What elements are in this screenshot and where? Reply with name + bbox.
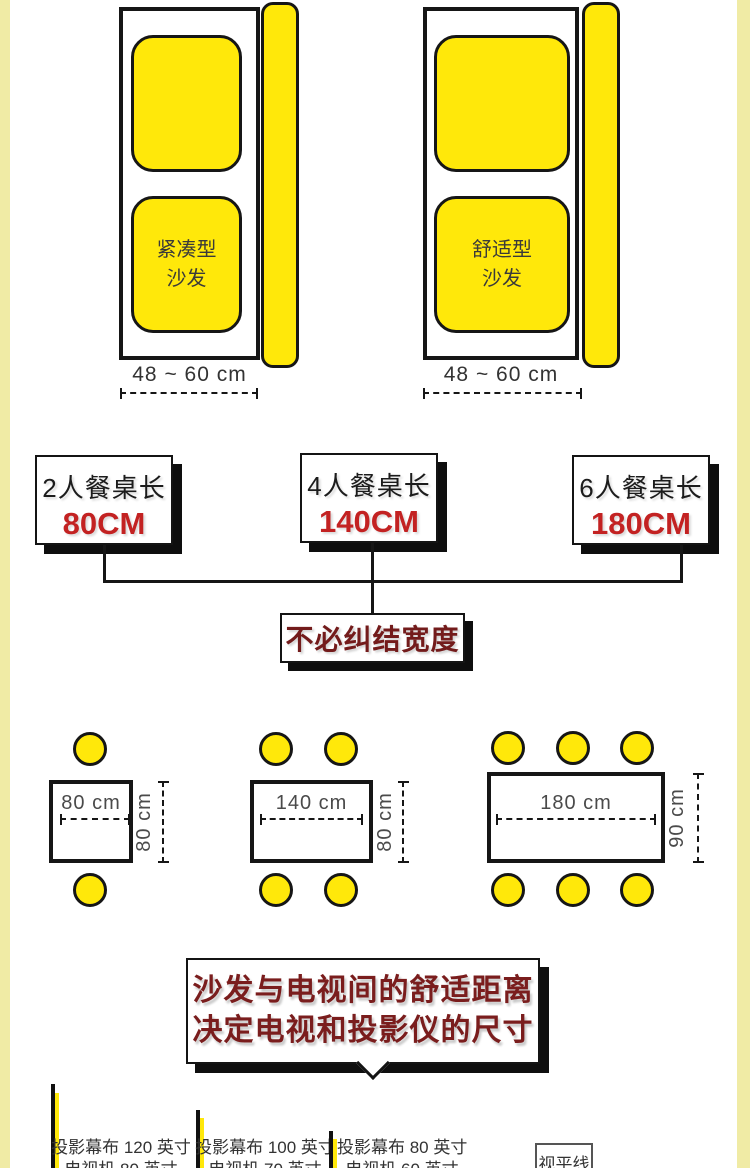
chair-icon (259, 873, 293, 907)
screen-label-120in-line1: 投影幕布 120 英寸 (51, 1138, 191, 1157)
eye-level-label: 视平线 (539, 1155, 590, 1168)
table-2p: 80 cm (49, 780, 133, 863)
dimension-tick (128, 814, 130, 825)
chair-icon (73, 873, 107, 907)
table-4p-length-dimension-line (260, 818, 363, 820)
chair-icon (259, 732, 293, 766)
screen-label-80in-line2: 电视机 60 英寸 (345, 1160, 458, 1168)
dimension-tick (120, 388, 122, 399)
chair-icon (620, 873, 654, 907)
table-2p-length-dimension-line (60, 818, 130, 820)
table-length-value-6p: 180CM (574, 506, 708, 542)
table-length-title-6p: 6人餐桌长 (574, 468, 708, 505)
compact-sofa-cushion-bottom: 紧凑型沙发 (131, 196, 242, 333)
comfort-sofa-cushion-top (434, 35, 570, 172)
screen-label-120in-line2: 电视机 80 英寸 (64, 1160, 177, 1168)
table-6p-depth-label: 90 cm (666, 786, 688, 850)
table-4p-length-label: 140 cm (254, 792, 369, 815)
chair-icon (556, 873, 590, 907)
tv-headline-line2: 决定电视和投影仪的尺寸 (193, 1011, 534, 1051)
comfort-sofa-backrest-bar (582, 2, 620, 368)
table-length-title-2p: 2人餐桌长 (37, 468, 171, 505)
compact-sofa-label: 紧凑型沙发 (157, 236, 217, 294)
tv-headline-line1: 沙发与电视间的舒适距离 (193, 971, 534, 1011)
screen-label-120in: 投影幕布 120 英寸 电视机 80 英寸 (45, 1137, 197, 1168)
table-6p-depth-dimension-line (697, 773, 699, 863)
dimension-tick (398, 861, 409, 863)
table-2p-depth-dimension-line (162, 781, 164, 863)
table-6p-length-label: 180 cm (491, 792, 661, 815)
chair-icon (324, 732, 358, 766)
dimension-tick (580, 388, 582, 399)
compact-sofa-depth-dimension-line (120, 392, 258, 394)
right-edge-strip (737, 0, 750, 1168)
comfort-sofa-label: 舒适型沙发 (472, 236, 532, 294)
connector-right-vertical (680, 545, 683, 583)
table-6p: 180 cm (487, 772, 665, 863)
screen-label-80in-line1: 投影幕布 80 英寸 (337, 1138, 467, 1157)
dimension-tick (398, 781, 409, 783)
screen-label-100in-line1: 投影幕布 100 英寸 (195, 1138, 335, 1157)
compact-sofa-depth-label: 48 ~ 60 cm (119, 363, 260, 387)
table-length-title-4p: 4人餐桌长 (302, 466, 436, 503)
chair-icon (491, 731, 525, 765)
table-6p-length-dimension-line (496, 818, 656, 820)
chair-icon (491, 873, 525, 907)
chair-icon (324, 873, 358, 907)
dimension-tick (60, 814, 62, 825)
compact-sofa-backrest-bar (261, 2, 299, 368)
dimension-tick (423, 388, 425, 399)
dimension-tick (158, 861, 169, 863)
table-2p-depth-label: 80 cm (133, 790, 155, 854)
width-note-box: 不必纠结宽度 (280, 613, 465, 663)
dimension-tick (158, 781, 169, 783)
chair-icon (620, 731, 654, 765)
table-length-value-2p: 80CM (37, 506, 171, 542)
dimension-tick (361, 814, 363, 825)
compact-sofa-cushion-top (131, 35, 242, 172)
table-length-box-6p: 6人餐桌长 180CM (572, 455, 710, 545)
comfort-sofa-cushion-bottom: 舒适型沙发 (434, 196, 570, 333)
eye-level-label-box: 视平线 (535, 1143, 593, 1168)
table-4p: 140 cm (250, 780, 373, 863)
screen-label-100in-line2: 电视机 70 英寸 (208, 1160, 321, 1168)
chair-icon (73, 732, 107, 766)
left-edge-strip (0, 0, 10, 1168)
dimension-tick (496, 814, 498, 825)
screen-label-100in: 投影幕布 100 英寸 电视机 70 英寸 (192, 1137, 338, 1168)
dimension-tick (693, 773, 704, 775)
chair-icon (556, 731, 590, 765)
table-4p-depth-dimension-line (402, 781, 404, 863)
comfort-sofa-depth-label: 48 ~ 60 cm (423, 363, 579, 387)
table-length-box-2p: 2人餐桌长 80CM (35, 455, 173, 545)
table-length-value-4p: 140CM (302, 504, 436, 540)
connector-horizontal (103, 580, 683, 583)
table-2p-length-label: 80 cm (53, 792, 129, 815)
infographic-canvas: 紧凑型沙发 48 ~ 60 cm 舒适型沙发 48 ~ 60 cm 2人餐桌长 … (0, 0, 750, 1168)
screen-label-80in: 投影幕布 80 英寸 电视机 60 英寸 (337, 1137, 467, 1168)
connector-center-vertical (371, 543, 374, 613)
comfort-sofa-depth-dimension-line (423, 392, 582, 394)
connector-left-vertical (103, 545, 106, 583)
dimension-tick (654, 814, 656, 825)
dimension-tick (256, 388, 258, 399)
width-note-text: 不必纠结宽度 (285, 618, 459, 658)
dimension-tick (260, 814, 262, 825)
table-4p-depth-label: 80 cm (374, 790, 396, 854)
tv-distance-headline-bubble: 沙发与电视间的舒适距离 决定电视和投影仪的尺寸 (186, 958, 540, 1064)
table-length-box-4p: 4人餐桌长 140CM (300, 453, 438, 543)
dimension-tick (693, 861, 704, 863)
